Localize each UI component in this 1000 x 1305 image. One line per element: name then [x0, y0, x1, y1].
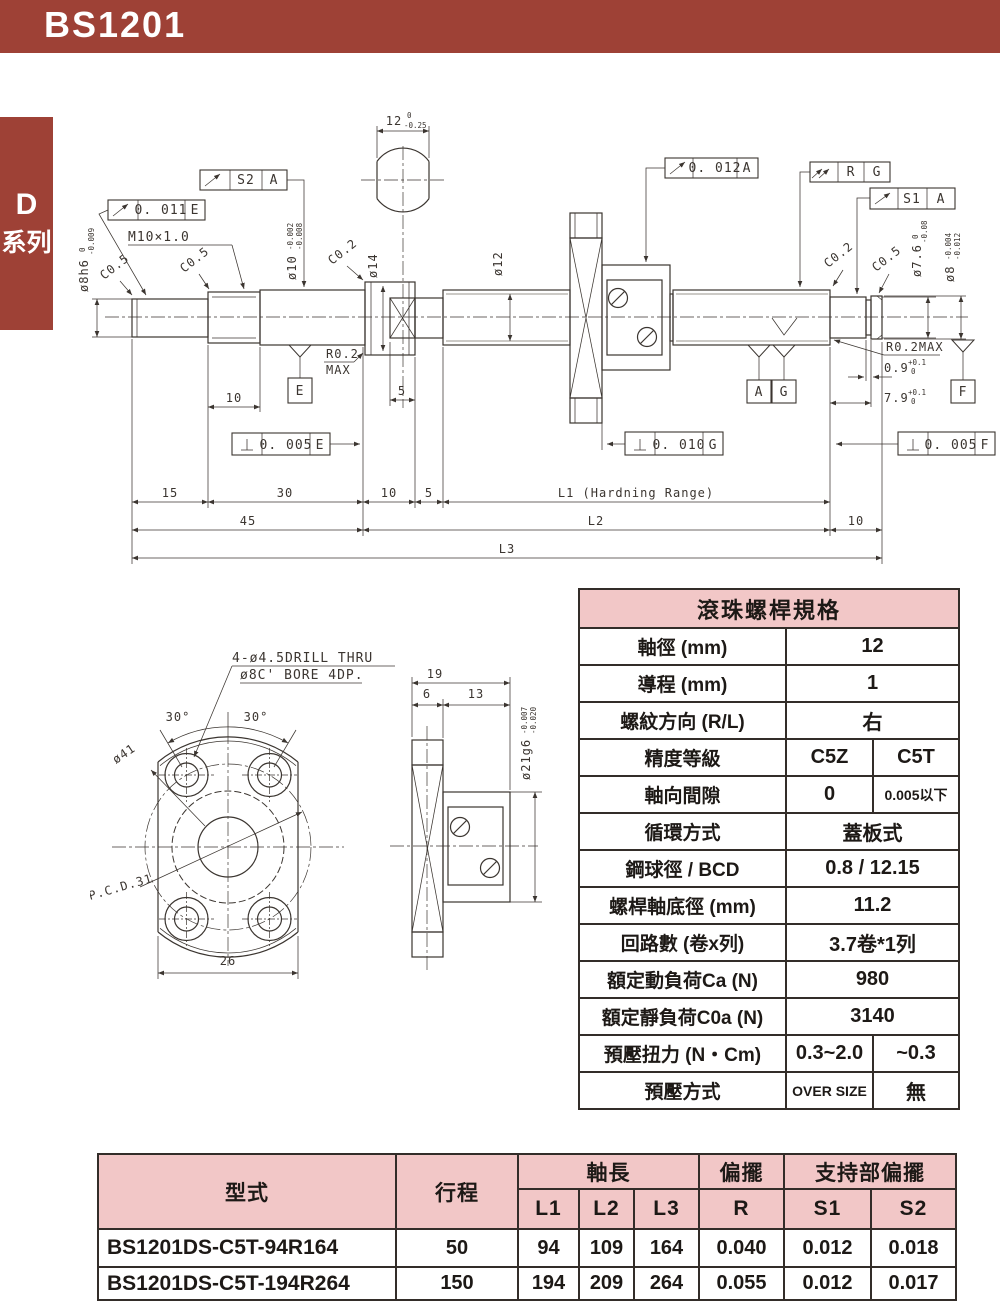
col-header-r: R [699, 1189, 784, 1229]
dim-12-tol-lower: -0.25 [404, 121, 427, 130]
callouts: M10×1.0 C0.5 C0.5 C0.2 C0.2 C0.5 R0.2 MA… [97, 230, 943, 407]
dia21-label: ø21g6 [519, 739, 533, 780]
flange-views-drawing: 26 30° 30° ø41 P.C.D.31 4-ø4.5DRILL THRU… [90, 650, 560, 1110]
svg-text:R0.2MAX: R0.2MAX [886, 340, 944, 354]
spec-label: 螺紋方向 (R/L) [579, 702, 786, 739]
dia14-label: ø14 [366, 253, 380, 278]
fcf-value: 0. 010 [653, 438, 706, 453]
spec-value: C5T [873, 739, 959, 776]
spec-value: 0.8 / 12.15 [786, 850, 959, 887]
spec-value: 980 [786, 961, 959, 998]
svg-text:MAX: MAX [326, 363, 351, 377]
dia8h6-label: ø8h6 [77, 259, 91, 292]
fcf-runout-0011-E: 0. 011 E [99, 200, 205, 295]
svg-text:C0.5: C0.5 [97, 251, 132, 282]
svg-text:15: 15 [162, 486, 178, 500]
svg-text:-0.002: -0.002 [286, 223, 295, 250]
l1-value: 94 [518, 1229, 579, 1267]
spec-value: 3.7卷*1列 [786, 924, 959, 961]
fcf-datum: A [743, 161, 752, 176]
s2-value: 0.018 [871, 1229, 956, 1267]
svg-text:45: 45 [240, 514, 256, 528]
svg-text:C0.2: C0.2 [325, 236, 360, 267]
spec-label: 精度等級 [579, 739, 786, 776]
cbore-note: ø8C' BORE 4DP. [240, 668, 364, 683]
dim-12-tol-upper: 0 [407, 111, 412, 120]
svg-text:30°: 30° [166, 710, 191, 724]
l3-value: 264 [634, 1267, 699, 1300]
s2-value: 0.017 [871, 1267, 956, 1300]
svg-text:C0.5: C0.5 [177, 244, 212, 275]
col-header-model: 型式 [98, 1154, 396, 1229]
spec-value: 無 [873, 1072, 959, 1109]
svg-text:0: 0 [911, 234, 920, 239]
spec-label: 預壓扭力 (N・Cm) [579, 1035, 786, 1072]
svg-text:10: 10 [381, 486, 397, 500]
fcf-perp-0005-E: 0. 005 E [232, 433, 360, 455]
col-header-l3: L3 [634, 1189, 699, 1229]
fcf-runout-S1-A: S1 A [857, 188, 955, 294]
page-title: BS1201 [44, 4, 186, 46]
svg-text:5: 5 [425, 486, 433, 500]
fcf-datum: E [316, 438, 325, 453]
fcf-value: S1 [903, 192, 921, 207]
l1-value: 194 [518, 1267, 579, 1300]
svg-text:10: 10 [226, 391, 242, 405]
svg-text:0: 0 [911, 397, 916, 406]
svg-text:-0.009: -0.009 [87, 228, 96, 255]
fcf-value: 0. 005 [260, 438, 313, 453]
datasheet-page: BS1201 D 系列 [0, 0, 1000, 1305]
spec-label: 預壓方式 [579, 1072, 786, 1109]
spec-label: 額定動負荷Ca (N) [579, 961, 786, 998]
l2-value: 209 [579, 1267, 634, 1300]
fcf-value: 0. 005 [925, 438, 978, 453]
spec-value: 12 [786, 628, 959, 665]
model-table: 型式 行程 軸長 偏擺 支持部偏擺 L1 L2 L3 R S1 S2 BS120… [97, 1153, 957, 1301]
shaft-outline [132, 282, 882, 355]
spec-value: OVER SIZE [786, 1072, 873, 1109]
datum-E: E [296, 384, 305, 399]
datum-targets: E A G F [288, 318, 975, 403]
model-name: BS1201DS-C5T-94R164 [98, 1229, 396, 1267]
spec-value: 1 [786, 665, 959, 702]
dia41-label: ø41 [110, 741, 138, 766]
svg-text:0: 0 [911, 367, 916, 376]
fcf-datum: G [873, 165, 882, 180]
svg-text:5: 5 [398, 384, 406, 398]
spec-value: 蓋板式 [786, 813, 959, 850]
svg-text:10: 10 [848, 514, 864, 528]
fcf-runout-0012-A: 0. 012 A [646, 158, 758, 262]
fcf-datum: F [981, 438, 990, 453]
svg-text:19: 19 [427, 667, 443, 681]
s1-value: 0.012 [784, 1267, 871, 1300]
nut-side-view: 19 6 13 ø21g6 -0.007 -0.020 [390, 667, 542, 972]
r-value: 0.055 [699, 1267, 784, 1300]
dia10-label: ø10 [285, 255, 299, 280]
r-value: 0.040 [699, 1229, 784, 1267]
fcf-datum: E [191, 203, 200, 218]
svg-text:7.9: 7.9 [884, 391, 909, 405]
col-header-support-runout: 支持部偏擺 [784, 1154, 956, 1189]
model-name: BS1201DS-C5T-194R264 [98, 1267, 396, 1300]
l3-value: 164 [634, 1229, 699, 1267]
fcf-datum: G [709, 438, 718, 453]
col-header-runout: 偏擺 [699, 1154, 784, 1189]
svg-text:-0.08: -0.08 [920, 220, 929, 243]
svg-text:L3: L3 [499, 542, 515, 556]
spec-value: 3140 [786, 998, 959, 1035]
dia76-label: ø7.6 [910, 244, 924, 277]
machining-mark-icon [772, 318, 797, 335]
fcf-perp-0010-G: 0. 010 G [607, 432, 723, 455]
flange-front-view: 26 30° 30° ø41 P.C.D.31 4-ø4.5DRILL THRU… [90, 651, 395, 979]
s1-value: 0.012 [784, 1229, 871, 1267]
svg-text:30: 30 [277, 486, 293, 500]
spec-value: C5Z [786, 739, 873, 776]
svg-text:-0.020: -0.020 [529, 706, 538, 734]
fcf-value: S2 [237, 173, 255, 188]
pcd-label: P.C.D.31 [90, 871, 154, 903]
spec-label: 循環方式 [579, 813, 786, 850]
svg-text:0: 0 [78, 247, 87, 252]
spec-value: ~0.3 [873, 1035, 959, 1072]
datum-G: G [780, 385, 789, 400]
col-header-l2: L2 [579, 1189, 634, 1229]
dim-12: 12 [386, 114, 402, 128]
spec-value: 11.2 [786, 887, 959, 924]
svg-text:13: 13 [468, 687, 484, 701]
svg-text:-0.007: -0.007 [520, 707, 529, 734]
stroke-value: 150 [396, 1267, 518, 1300]
svg-text:C0.5: C0.5 [869, 243, 904, 274]
dia12-label: ø12 [491, 251, 505, 276]
datum-F: F [959, 385, 968, 400]
spec-label: 螺桿軸底徑 (mm) [579, 887, 786, 924]
fcf-value: 0. 011 [135, 203, 188, 218]
svg-text:C0.2: C0.2 [821, 239, 856, 270]
col-header-shaft-length: 軸長 [518, 1154, 699, 1189]
datum-A: A [755, 385, 764, 400]
spec-label: 鋼球徑 / BCD [579, 850, 786, 887]
spec-table-title: 滾珠螺桿規格 [579, 589, 959, 628]
svg-text:R0.2: R0.2 [326, 347, 359, 361]
spec-label: 軸向間隙 [579, 776, 786, 813]
fcf-value: R [847, 165, 856, 180]
diameter-dimensions: ø8h6 0 -0.009 ø10 -0.002 -0.008 ø14 ø12 … [77, 220, 966, 351]
col-header-s2: S2 [871, 1189, 956, 1229]
model-row: BS1201DS-C5T-94R164 50 94 109 164 0.040 … [98, 1229, 956, 1267]
ball-nut [570, 213, 673, 423]
fcf-value: 0. 012 [689, 161, 742, 176]
header-bar: BS1201 [0, 0, 1000, 53]
spec-value: 右 [786, 702, 959, 739]
spec-label: 額定靜負荷C0a (N) [579, 998, 786, 1035]
svg-text:0.9: 0.9 [884, 361, 909, 375]
svg-text:-0.008: -0.008 [295, 222, 304, 250]
spec-label: 導程 (mm) [579, 665, 786, 702]
col-header-l1: L1 [518, 1189, 579, 1229]
col-header-stroke: 行程 [396, 1154, 518, 1229]
main-technical-drawing: 12 0 -0.25 0. 011 E S2 A [0, 90, 1000, 590]
svg-text:-0.012: -0.012 [953, 233, 962, 260]
spec-label: 回路數 (卷x列) [579, 924, 786, 961]
svg-text:26: 26 [220, 954, 236, 968]
svg-text:30°: 30° [244, 710, 269, 724]
col-header-s1: S1 [784, 1189, 871, 1229]
drill-note: 4-ø4.5DRILL THRU [232, 651, 373, 666]
l2-value: 109 [579, 1229, 634, 1267]
spec-value: 0.3~2.0 [786, 1035, 873, 1072]
hardening-range-label: L1 (Hardning Range) [558, 486, 714, 500]
spec-value: 0 [786, 776, 873, 813]
fcf-datum: A [937, 192, 946, 207]
svg-text:L2: L2 [588, 514, 604, 528]
spec-table: 滾珠螺桿規格 軸徑 (mm) 12 導程 (mm) 1 螺紋方向 (R/L) 右… [578, 588, 960, 1110]
spec-label: 軸徑 (mm) [579, 628, 786, 665]
model-row: BS1201DS-C5T-194R264 150 194 209 264 0.0… [98, 1267, 956, 1300]
thread-callout: M10×1.0 [128, 230, 190, 245]
svg-text:+0.1: +0.1 [908, 358, 926, 367]
svg-text:+0.1: +0.1 [908, 388, 926, 397]
spec-value: 0.005以下 [873, 776, 959, 813]
fcf-datum: A [270, 173, 279, 188]
svg-text:-0.004: -0.004 [944, 232, 953, 260]
svg-text:6: 6 [423, 687, 431, 701]
stroke-value: 50 [396, 1229, 518, 1267]
fcf-perp-0005-F: 0. 005 F [836, 432, 995, 455]
dia8r-label: ø8 [943, 266, 957, 282]
